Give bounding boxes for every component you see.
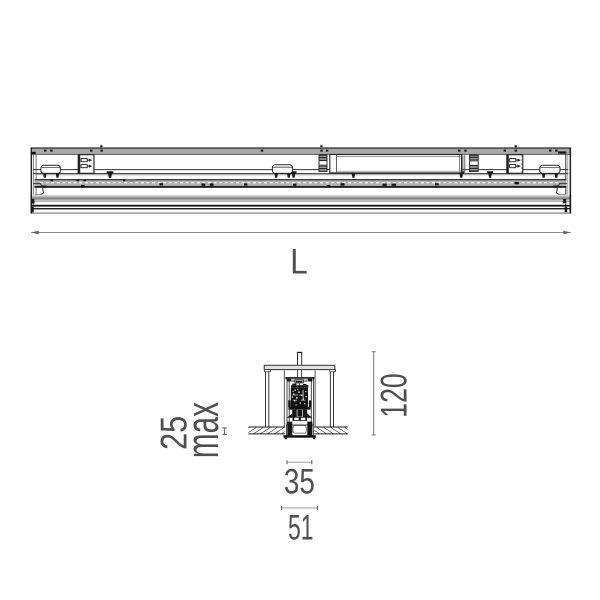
svg-text:35: 35 [284, 463, 315, 502]
svg-text:max: max [177, 402, 228, 458]
svg-text:120: 120 [373, 373, 414, 418]
svg-text:L: L [290, 243, 308, 282]
svg-text:51: 51 [288, 509, 314, 548]
